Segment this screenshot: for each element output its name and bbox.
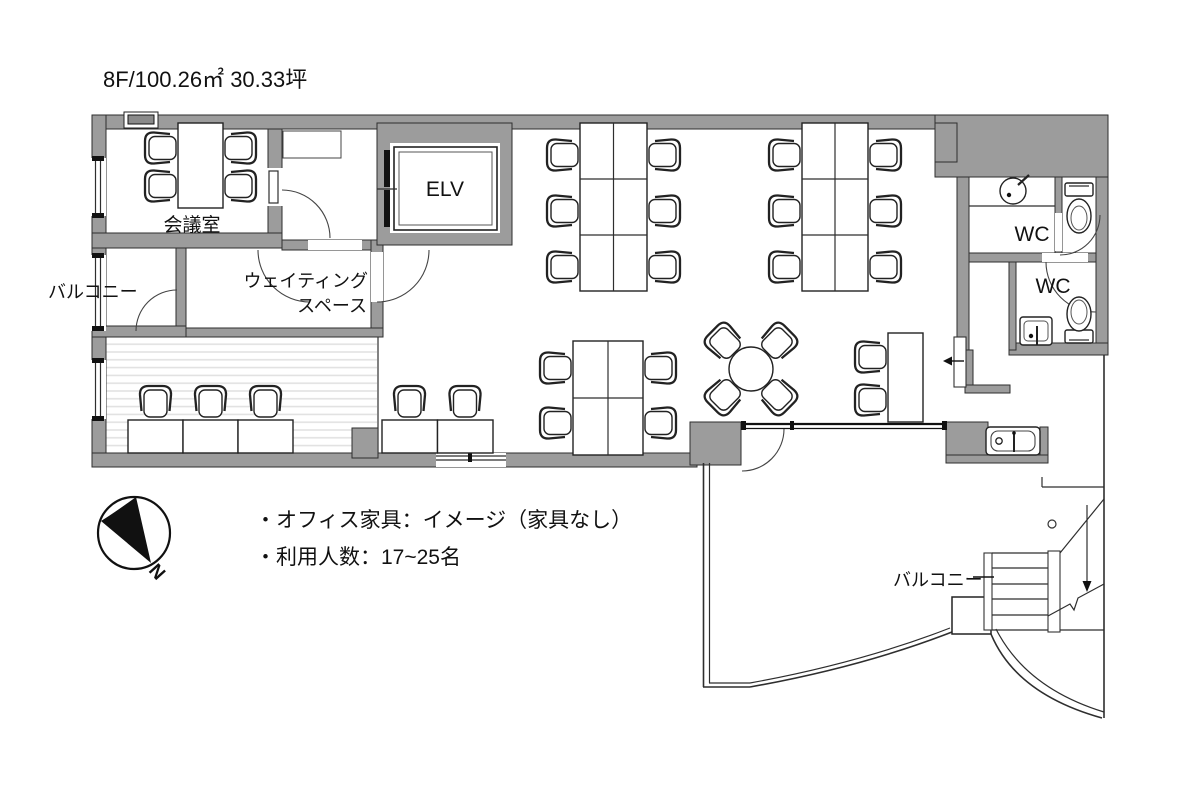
toilet-lower [1065,297,1093,343]
kitchen-sink [986,427,1040,455]
elevator-shaft: ELV [377,143,500,233]
emergency-stairs [984,499,1104,632]
note-furniture: ・オフィス家具：イメージ（家具なし） [255,509,632,532]
meeting-room-furniture [145,123,256,208]
hall-niche [283,131,341,158]
window-left-3 [90,358,106,421]
window-left-1 [90,156,106,218]
label-balcony-lower-right: バルコニー [893,570,983,590]
label-elevator: ELV [426,178,464,201]
side-desk-right [855,333,923,422]
floor-plan-page: ELV [0,0,1200,797]
label-waiting-space-line2: スペース [297,296,367,316]
floor-plan-title: 8F/100.26㎡ 30.33坪 [103,67,307,92]
label-wc-lower: WC [1036,275,1071,298]
note-capacity: ・利用人数：17~25名 [255,546,461,569]
floor-plan-drawing: ELV [0,0,1200,797]
square-sink [1020,317,1052,345]
wall-desk-row-right [382,386,493,453]
stair-entry-door [943,337,966,387]
label-balcony-upper-left: バルコニー [48,282,138,302]
label-waiting-space-line1: ウェイティング [243,271,368,291]
wall-desk-row-left [128,386,293,453]
window-top [124,112,158,128]
label-meeting-room: 会議室 [163,214,220,236]
label-wc-upper: WC [1015,223,1050,246]
round-sink [1000,175,1029,204]
round-meeting-table [702,320,801,419]
compass-north-label: N [144,560,169,584]
desk-cluster-1 [547,123,680,291]
toilet-upper [1065,183,1093,233]
notes: ・オフィス家具：イメージ（家具なし） ・利用人数：17~25名 [255,509,632,569]
compass: N [98,497,170,584]
desk-cluster-2 [769,123,901,291]
desk-cluster-3 [540,341,676,455]
